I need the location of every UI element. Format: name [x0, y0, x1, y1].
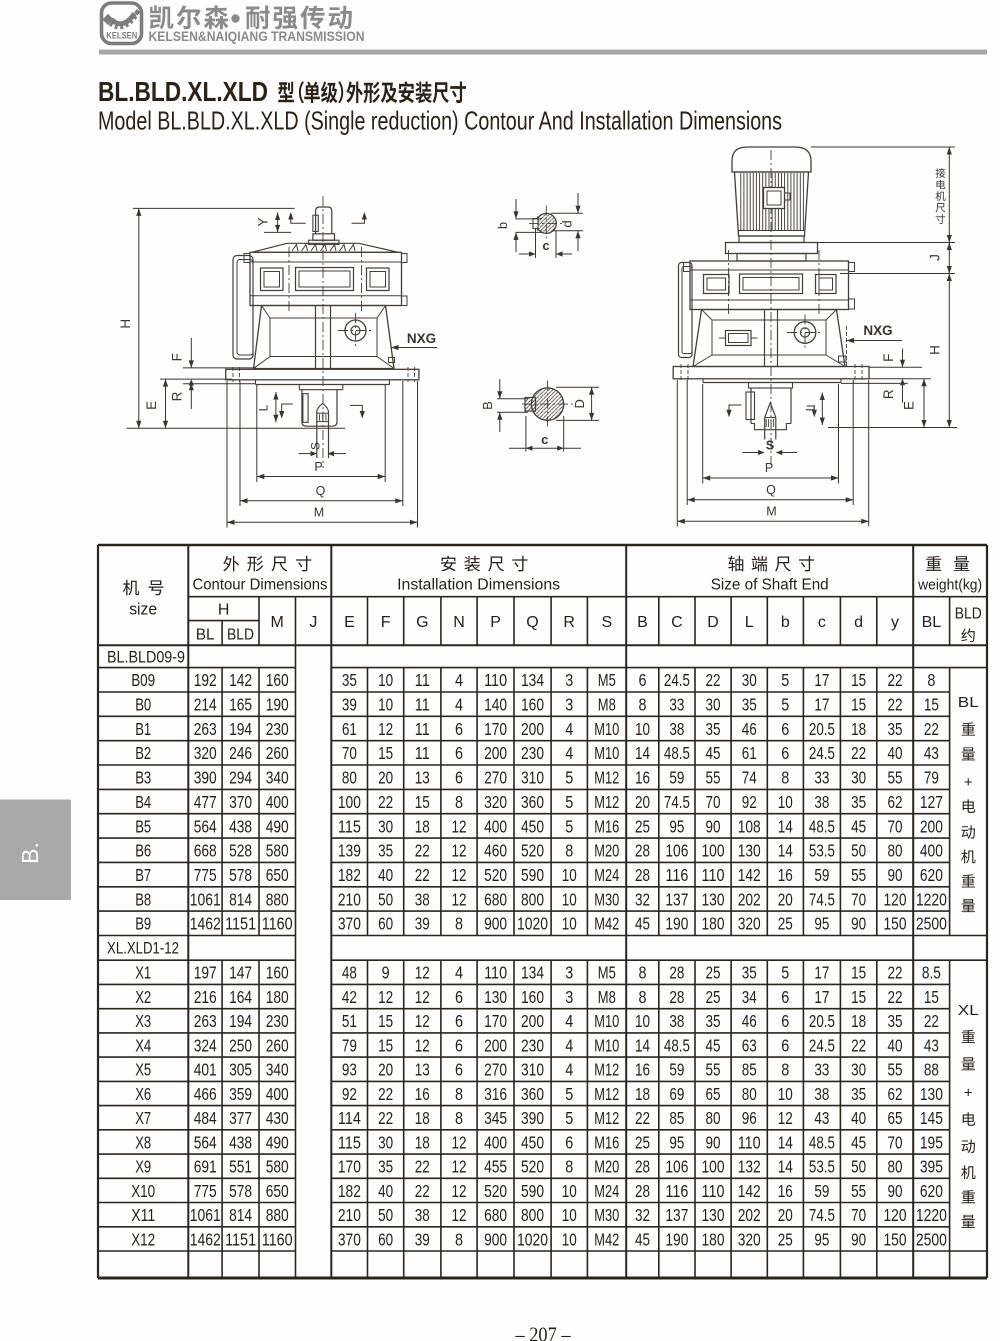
svg-text:578: 578	[229, 865, 252, 885]
svg-text:14: 14	[778, 816, 793, 836]
svg-text:25: 25	[706, 963, 721, 983]
svg-text:35: 35	[342, 670, 357, 690]
svg-text:18: 18	[415, 816, 430, 836]
svg-text:40: 40	[888, 1035, 903, 1055]
svg-text:M8: M8	[598, 987, 616, 1007]
svg-text:6: 6	[455, 719, 463, 739]
svg-text:310: 310	[521, 768, 544, 788]
svg-text:22: 22	[888, 963, 903, 983]
svg-text:551: 551	[229, 1157, 252, 1177]
svg-text:53.5: 53.5	[809, 1157, 835, 1177]
svg-text:D: D	[572, 399, 587, 408]
svg-text:S: S	[766, 439, 774, 453]
svg-text:79: 79	[924, 768, 939, 788]
svg-text:100: 100	[702, 841, 725, 861]
svg-text:22: 22	[635, 1108, 650, 1128]
svg-text:130: 130	[702, 889, 725, 909]
svg-text:520: 520	[484, 1181, 507, 1201]
svg-text:8: 8	[455, 1108, 463, 1128]
svg-text:M5: M5	[598, 670, 616, 690]
svg-text:1462: 1462	[190, 1229, 221, 1249]
svg-text:M20: M20	[594, 1157, 619, 1177]
svg-text:200: 200	[484, 1035, 507, 1055]
svg-text:80: 80	[342, 768, 357, 788]
svg-text:40: 40	[378, 865, 393, 885]
svg-text:60: 60	[378, 1229, 393, 1249]
svg-text:M12: M12	[594, 1084, 619, 1104]
svg-text:10: 10	[562, 1229, 577, 1249]
svg-text:22: 22	[378, 1108, 393, 1128]
svg-text:6: 6	[781, 1035, 789, 1055]
svg-text:22: 22	[851, 1035, 866, 1055]
svg-text:137: 137	[665, 889, 688, 909]
svg-text:15: 15	[415, 792, 430, 812]
svg-text:430: 430	[266, 1108, 289, 1128]
svg-text:60: 60	[378, 914, 393, 934]
svg-text:92: 92	[342, 1084, 357, 1104]
svg-text:– 207 –: – 207 –	[515, 1323, 571, 1341]
svg-text:12: 12	[452, 841, 467, 861]
svg-text:25: 25	[635, 1132, 650, 1152]
svg-text:4: 4	[565, 743, 573, 763]
svg-text:115: 115	[338, 1132, 361, 1152]
svg-text:580: 580	[266, 1157, 289, 1177]
svg-text:18: 18	[415, 1132, 430, 1152]
svg-text:N: N	[453, 614, 465, 631]
svg-text:80: 80	[888, 1157, 903, 1177]
svg-text:15: 15	[851, 963, 866, 983]
svg-text:127: 127	[920, 792, 943, 812]
svg-text:50: 50	[851, 841, 866, 861]
svg-text:55: 55	[706, 1060, 721, 1080]
svg-text:100: 100	[338, 792, 361, 812]
svg-text:35: 35	[888, 1011, 903, 1031]
svg-text:c: c	[541, 432, 548, 447]
svg-text:194: 194	[229, 1011, 252, 1031]
svg-text:43: 43	[924, 743, 939, 763]
svg-text:5: 5	[565, 792, 573, 812]
svg-text:M42: M42	[594, 914, 619, 934]
svg-text:59: 59	[669, 768, 684, 788]
svg-text:401: 401	[194, 1060, 217, 1080]
svg-text:25: 25	[778, 1229, 793, 1249]
svg-text:93: 93	[342, 1060, 357, 1080]
svg-text:55: 55	[851, 1181, 866, 1201]
svg-text:X1: X1	[135, 963, 151, 983]
svg-text:305: 305	[229, 1060, 252, 1080]
svg-text:170: 170	[338, 1157, 361, 1177]
svg-text:24.5: 24.5	[809, 743, 835, 763]
svg-text:150: 150	[884, 914, 907, 934]
svg-text:814: 814	[229, 889, 252, 909]
svg-text:F: F	[381, 614, 391, 631]
svg-text:35: 35	[742, 963, 757, 983]
svg-text:165: 165	[229, 695, 252, 715]
svg-text:30: 30	[706, 695, 721, 715]
svg-text:10: 10	[562, 889, 577, 909]
svg-text:22: 22	[888, 987, 903, 1007]
svg-text:450: 450	[521, 816, 544, 836]
svg-text:35: 35	[378, 841, 393, 861]
svg-text:55: 55	[851, 865, 866, 885]
svg-text:477: 477	[194, 792, 217, 812]
svg-text:14: 14	[635, 743, 650, 763]
svg-text:377: 377	[229, 1108, 252, 1128]
svg-text:142: 142	[738, 1181, 761, 1201]
svg-text:B8: B8	[135, 889, 151, 909]
svg-text:324: 324	[194, 1035, 217, 1055]
svg-text:520: 520	[484, 865, 507, 885]
svg-text:8: 8	[781, 1060, 789, 1080]
svg-text:74.5: 74.5	[809, 889, 835, 909]
svg-text:8: 8	[565, 841, 573, 861]
svg-text:Size of Shaft End: Size of Shaft End	[711, 577, 829, 594]
svg-text:145: 145	[920, 1108, 943, 1128]
svg-text:90: 90	[888, 865, 903, 885]
svg-text:263: 263	[194, 1011, 217, 1031]
svg-text:460: 460	[484, 841, 507, 861]
svg-text:137: 137	[665, 1205, 688, 1225]
svg-text:46: 46	[742, 719, 757, 739]
svg-text:12: 12	[415, 1035, 430, 1055]
svg-text:46: 46	[742, 1011, 757, 1031]
svg-text:3: 3	[565, 670, 573, 690]
svg-text:160: 160	[266, 670, 289, 690]
svg-text:BL.BLD.XL.XLD: BL.BLD.XL.XLD	[98, 76, 268, 107]
svg-text:15: 15	[378, 743, 393, 763]
svg-text:320: 320	[738, 1229, 761, 1249]
svg-text:390: 390	[521, 1108, 544, 1128]
svg-text:1151: 1151	[225, 914, 256, 934]
svg-text:12: 12	[415, 1011, 430, 1031]
svg-text:22: 22	[706, 670, 721, 690]
svg-text:528: 528	[229, 841, 252, 861]
svg-text:270: 270	[484, 768, 507, 788]
svg-text:X5: X5	[135, 1060, 151, 1080]
svg-text:32: 32	[635, 889, 650, 909]
svg-text:30: 30	[378, 816, 393, 836]
svg-text:110: 110	[702, 865, 725, 885]
svg-text:142: 142	[738, 865, 761, 885]
svg-text:20: 20	[778, 889, 793, 909]
svg-text:79: 79	[342, 1035, 357, 1055]
svg-text:520: 520	[521, 841, 544, 861]
svg-text:50: 50	[378, 1205, 393, 1225]
svg-text:74.5: 74.5	[809, 1205, 835, 1225]
svg-text:95: 95	[669, 816, 684, 836]
svg-text:620: 620	[920, 865, 943, 885]
svg-text:250: 250	[229, 1035, 252, 1055]
svg-text:M24: M24	[594, 865, 619, 885]
svg-text:316: 316	[484, 1084, 507, 1104]
svg-text:35: 35	[706, 1011, 721, 1031]
svg-text:90: 90	[851, 914, 866, 934]
svg-text:260: 260	[266, 743, 289, 763]
svg-text:200: 200	[920, 816, 943, 836]
svg-text:B: B	[637, 614, 648, 631]
svg-text:438: 438	[229, 1132, 252, 1152]
svg-text:Q: Q	[766, 483, 776, 497]
svg-text:22: 22	[378, 792, 393, 812]
svg-text:25: 25	[706, 987, 721, 1007]
svg-text:35: 35	[851, 792, 866, 812]
svg-text:43: 43	[924, 1035, 939, 1055]
svg-text:900: 900	[484, 1229, 507, 1249]
svg-text:345: 345	[484, 1108, 507, 1128]
svg-text:X10: X10	[131, 1181, 155, 1201]
svg-text:4: 4	[455, 670, 463, 690]
svg-text:400: 400	[484, 816, 507, 836]
svg-text:210: 210	[338, 889, 361, 909]
svg-text:KELSEN&NAIQIANG TRANSMISSION: KELSEN&NAIQIANG TRANSMISSION	[149, 29, 365, 44]
svg-text:H: H	[118, 319, 133, 329]
svg-text:132: 132	[738, 1157, 761, 1177]
svg-text:85: 85	[742, 1060, 757, 1080]
svg-text:680: 680	[484, 889, 507, 909]
svg-text:150: 150	[884, 1229, 907, 1249]
svg-text:50: 50	[378, 889, 393, 909]
svg-text:400: 400	[266, 1084, 289, 1104]
svg-text:182: 182	[338, 865, 361, 885]
svg-text:1061: 1061	[190, 1205, 221, 1225]
svg-text:d: d	[854, 614, 863, 631]
svg-text:4: 4	[565, 1035, 573, 1055]
svg-text:95: 95	[669, 1132, 684, 1152]
svg-text:260: 260	[266, 1035, 289, 1055]
svg-text:108: 108	[738, 816, 761, 836]
svg-text:L: L	[257, 404, 271, 411]
svg-text:M10: M10	[594, 1011, 619, 1031]
svg-text:B9: B9	[135, 914, 151, 934]
svg-text:63: 63	[742, 1035, 757, 1055]
svg-text:15: 15	[924, 695, 939, 715]
svg-text:70: 70	[851, 1205, 866, 1225]
svg-text:106: 106	[665, 1157, 688, 1177]
svg-text:45: 45	[706, 743, 721, 763]
svg-text:214: 214	[194, 695, 217, 715]
svg-text:814: 814	[229, 1205, 252, 1225]
svg-text:65: 65	[706, 1084, 721, 1104]
svg-text:M10: M10	[594, 719, 619, 739]
svg-text:M12: M12	[594, 768, 619, 788]
svg-text:6: 6	[781, 719, 789, 739]
svg-text:880: 880	[266, 889, 289, 909]
svg-text:R: R	[881, 389, 896, 399]
svg-text:34: 34	[742, 987, 757, 1007]
svg-text:775: 775	[194, 865, 217, 885]
svg-text:M16: M16	[594, 1132, 619, 1152]
svg-text:22: 22	[888, 670, 903, 690]
svg-text:6: 6	[639, 670, 647, 690]
svg-text:35: 35	[851, 1084, 866, 1104]
svg-text:263: 263	[194, 719, 217, 739]
svg-text:M: M	[271, 614, 284, 631]
svg-text:8: 8	[455, 1229, 463, 1249]
svg-text:12: 12	[452, 1132, 467, 1152]
svg-text:70: 70	[888, 816, 903, 836]
svg-text:400: 400	[266, 792, 289, 812]
svg-text:578: 578	[229, 1181, 252, 1201]
svg-text:6: 6	[781, 1011, 789, 1031]
svg-text:359: 359	[229, 1084, 252, 1104]
svg-text:13: 13	[415, 1060, 430, 1080]
svg-text:B0: B0	[135, 695, 151, 715]
svg-text:28: 28	[669, 987, 684, 1007]
svg-text:11: 11	[415, 670, 430, 690]
svg-text:520: 520	[521, 1157, 544, 1177]
svg-text:10: 10	[378, 670, 393, 690]
svg-text:6: 6	[455, 1011, 463, 1031]
svg-text:45: 45	[706, 1035, 721, 1055]
svg-text:38: 38	[814, 792, 829, 812]
svg-text:+: +	[964, 1085, 973, 1102]
svg-text:190: 190	[266, 695, 289, 715]
svg-text:38: 38	[415, 889, 430, 909]
svg-text:200: 200	[521, 719, 544, 739]
svg-text:210: 210	[338, 1205, 361, 1225]
svg-text:20: 20	[378, 768, 393, 788]
svg-text:S: S	[601, 614, 612, 631]
svg-text:106: 106	[665, 841, 688, 861]
svg-text:20: 20	[378, 1060, 393, 1080]
svg-text:55: 55	[706, 768, 721, 788]
svg-text:18: 18	[851, 719, 866, 739]
svg-text:246: 246	[229, 743, 252, 763]
svg-text:M10: M10	[594, 743, 619, 763]
svg-text:20: 20	[778, 1205, 793, 1225]
svg-text:B7: B7	[135, 865, 151, 885]
svg-text:160: 160	[521, 695, 544, 715]
svg-text:24.5: 24.5	[664, 670, 690, 690]
svg-text:20: 20	[635, 792, 650, 812]
svg-text:170: 170	[484, 1011, 507, 1031]
svg-text:164: 164	[229, 987, 252, 1007]
svg-text:48.5: 48.5	[809, 1132, 835, 1152]
svg-text:200: 200	[521, 1011, 544, 1031]
svg-text:14: 14	[778, 1132, 793, 1152]
svg-text:22: 22	[888, 695, 903, 715]
svg-text:230: 230	[266, 719, 289, 739]
svg-text:4: 4	[455, 963, 463, 983]
svg-text:16: 16	[635, 768, 650, 788]
svg-text:17: 17	[814, 963, 829, 983]
svg-text:8: 8	[927, 670, 935, 690]
svg-text:775: 775	[194, 1181, 217, 1201]
svg-text:564: 564	[194, 1132, 217, 1152]
svg-text:48.5: 48.5	[809, 816, 835, 836]
svg-text:10: 10	[635, 1011, 650, 1031]
svg-text:14: 14	[778, 841, 793, 861]
svg-text:M42: M42	[594, 1229, 619, 1249]
svg-text:BL: BL	[922, 614, 942, 631]
svg-text:61: 61	[742, 743, 757, 763]
svg-text:12: 12	[452, 1181, 467, 1201]
svg-text:10: 10	[778, 1084, 793, 1104]
svg-text:80: 80	[706, 1108, 721, 1128]
svg-text:+: +	[964, 774, 973, 791]
svg-text:35: 35	[378, 1157, 393, 1177]
svg-text:5: 5	[565, 768, 573, 788]
svg-text:NXG: NXG	[863, 323, 892, 338]
svg-text:340: 340	[266, 1060, 289, 1080]
svg-text:70: 70	[342, 743, 357, 763]
svg-text:39: 39	[415, 914, 430, 934]
svg-text:12: 12	[452, 1157, 467, 1177]
svg-text:61: 61	[342, 719, 357, 739]
svg-text:D: D	[707, 614, 719, 631]
svg-text:S: S	[309, 442, 323, 450]
svg-text:M24: M24	[594, 1181, 619, 1201]
svg-text:115: 115	[338, 816, 361, 836]
svg-text:38: 38	[814, 1084, 829, 1104]
svg-text:5: 5	[781, 695, 789, 715]
svg-text:400: 400	[920, 841, 943, 861]
svg-text:59: 59	[669, 1060, 684, 1080]
svg-text:17: 17	[814, 695, 829, 715]
svg-text:80: 80	[742, 1084, 757, 1104]
svg-text:Model BL.BLD.XL.XLD (Single re: Model BL.BLD.XL.XLD (Single reduction) C…	[98, 106, 782, 136]
svg-text:B: B	[480, 401, 495, 410]
svg-text:8: 8	[455, 914, 463, 934]
svg-text:E: E	[144, 401, 159, 410]
svg-text:12: 12	[378, 719, 393, 739]
svg-text:116: 116	[665, 1181, 688, 1201]
svg-text:680: 680	[484, 1205, 507, 1225]
svg-text:70: 70	[851, 889, 866, 909]
svg-text:160: 160	[266, 963, 289, 983]
svg-text:X7: X7	[135, 1108, 151, 1128]
svg-text:E: E	[902, 401, 917, 410]
svg-text:139: 139	[338, 841, 361, 861]
svg-text:438: 438	[229, 816, 252, 836]
svg-text:c: c	[542, 238, 549, 253]
svg-text:3: 3	[565, 987, 573, 1007]
svg-text:25: 25	[635, 816, 650, 836]
svg-text:8: 8	[565, 1157, 573, 1177]
svg-text:65: 65	[888, 1108, 903, 1128]
svg-text:38: 38	[669, 719, 684, 739]
svg-text:92: 92	[742, 792, 757, 812]
svg-text:B09: B09	[131, 670, 155, 690]
svg-text:668: 668	[194, 841, 217, 861]
svg-text:33: 33	[669, 695, 684, 715]
svg-text:M12: M12	[594, 1108, 619, 1128]
svg-text:320: 320	[738, 914, 761, 934]
svg-text:580: 580	[266, 841, 289, 861]
svg-text:130: 130	[920, 1084, 943, 1104]
svg-text:3: 3	[565, 963, 573, 983]
svg-text:90: 90	[706, 1132, 721, 1152]
svg-text:G: G	[416, 614, 428, 631]
svg-text:12: 12	[452, 889, 467, 909]
svg-text:BL: BL	[958, 694, 979, 711]
svg-text:11: 11	[415, 743, 430, 763]
svg-text:M30: M30	[594, 889, 619, 909]
svg-text:370: 370	[338, 914, 361, 934]
svg-text:B2: B2	[135, 743, 151, 763]
svg-text:M8: M8	[598, 695, 616, 715]
svg-text:40: 40	[888, 743, 903, 763]
svg-text:370: 370	[338, 1229, 361, 1249]
svg-text:59: 59	[814, 1181, 829, 1201]
svg-text:28: 28	[635, 1181, 650, 1201]
svg-text:Installation Dimensions: Installation Dimensions	[397, 577, 560, 594]
svg-text:2500: 2500	[916, 1229, 947, 1249]
svg-text:6: 6	[455, 768, 463, 788]
svg-text:110: 110	[702, 1181, 725, 1201]
svg-text:110: 110	[484, 963, 507, 983]
svg-text:5: 5	[781, 670, 789, 690]
